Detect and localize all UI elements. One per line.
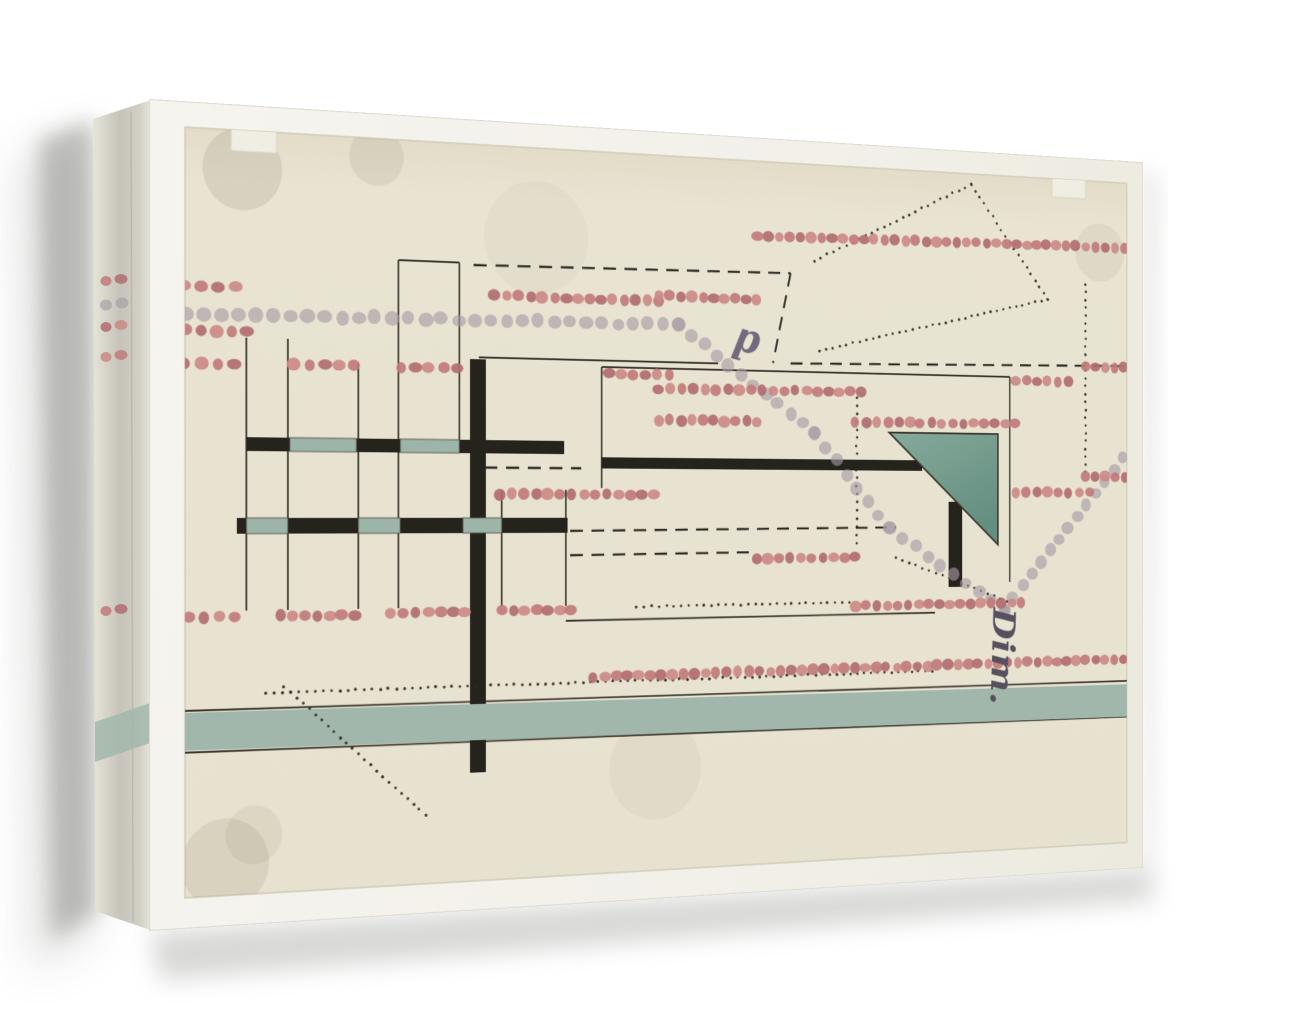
gray-dot xyxy=(1045,543,1056,556)
ink-dot xyxy=(856,500,858,503)
wrapped-red-dot xyxy=(115,350,128,360)
teal-block xyxy=(290,438,357,452)
ink-dot xyxy=(856,517,859,520)
gray-dot xyxy=(910,539,922,552)
teal-block xyxy=(400,439,459,453)
gray-dot xyxy=(841,469,853,482)
artwork-svg: Dim.d xyxy=(150,100,1142,930)
ink-dot xyxy=(855,534,857,537)
gray-dot xyxy=(948,567,960,580)
gray-dot xyxy=(934,559,946,573)
red-dot xyxy=(774,553,784,563)
gray-dot xyxy=(1072,511,1084,522)
wrapped-red-dot xyxy=(115,274,128,284)
red-dot xyxy=(1075,488,1084,498)
ink-dot xyxy=(921,567,923,570)
ink-dot xyxy=(856,542,858,545)
wrapped-red-dot xyxy=(115,604,128,614)
red-dot xyxy=(602,488,611,499)
red-dot xyxy=(518,488,529,500)
red-dot xyxy=(1081,471,1090,482)
red-dot xyxy=(1021,487,1031,498)
ink-dot xyxy=(855,468,858,471)
canvas-side-face xyxy=(93,100,153,931)
red-dot xyxy=(494,489,506,501)
red-dot xyxy=(613,490,625,500)
red-dot xyxy=(1033,487,1042,498)
ink-dot xyxy=(935,572,937,575)
red-dot xyxy=(648,489,660,499)
wrapped-red-dot xyxy=(115,320,128,330)
red-dot xyxy=(1099,470,1110,481)
ink-dot xyxy=(856,476,858,479)
wrapped-red-dot xyxy=(101,606,112,616)
red-dot xyxy=(507,487,517,499)
gray-dot xyxy=(850,481,862,495)
red-dot xyxy=(828,552,839,562)
teal-block xyxy=(358,518,400,534)
shadow-right xyxy=(1142,168,1158,880)
red-dot xyxy=(796,553,806,563)
gray-dot xyxy=(923,551,935,564)
ink-dot xyxy=(856,452,858,454)
gray-dot xyxy=(1081,498,1091,511)
red-dot xyxy=(1085,487,1094,496)
teal-block xyxy=(463,518,502,533)
ink-dot xyxy=(855,460,857,463)
wrapped-red-dot xyxy=(101,276,112,286)
red-dot xyxy=(579,489,589,500)
ink-dot xyxy=(942,574,944,576)
inscription-dim: Dim. xyxy=(983,607,1022,705)
red-dot xyxy=(567,488,576,500)
gray-dot xyxy=(872,510,884,521)
red-dot xyxy=(752,553,762,564)
red-dot xyxy=(806,553,816,563)
red-dot xyxy=(590,490,601,500)
red-dot xyxy=(1091,471,1100,482)
red-dot xyxy=(1121,472,1129,483)
wrapped-gray-dot xyxy=(116,298,129,309)
red-dot xyxy=(1064,488,1072,499)
ink-dot xyxy=(1084,463,1086,466)
red-dot xyxy=(785,552,794,564)
red-dot xyxy=(625,490,637,501)
gray-dot xyxy=(1118,451,1128,463)
red-dot xyxy=(819,552,827,563)
wrapped-gray-dot xyxy=(100,300,112,311)
gray-dot xyxy=(883,521,896,534)
canvas-print: Dim.d xyxy=(150,100,1142,930)
ink-dot xyxy=(908,561,911,564)
paper-notch xyxy=(231,119,276,153)
red-dot xyxy=(554,489,565,500)
ink-dot xyxy=(895,556,897,559)
ink-dot xyxy=(914,564,916,567)
ink-dot xyxy=(856,509,859,512)
ink-dot xyxy=(1084,455,1086,458)
teal-block xyxy=(246,518,288,534)
wrapped-red-dot xyxy=(101,352,112,362)
ink-dot xyxy=(856,525,859,528)
wrapped-red-dot xyxy=(101,322,112,332)
gray-dot xyxy=(1061,522,1073,535)
red-dot xyxy=(1042,486,1053,497)
red-dot xyxy=(849,552,860,562)
paper-notch xyxy=(1052,169,1085,198)
ink-dot xyxy=(928,569,930,572)
canvas-mockup-scene: Dim.d xyxy=(0,0,1290,1031)
ink-dot xyxy=(901,559,903,562)
red-dot xyxy=(761,553,773,565)
red-dot xyxy=(636,489,648,499)
gray-dot xyxy=(1035,555,1047,569)
gray-dot xyxy=(862,495,874,509)
red-dot xyxy=(541,488,554,500)
canvas-front-face: Dim.d xyxy=(150,100,1142,930)
red-dot xyxy=(839,552,850,563)
red-dot xyxy=(1110,472,1119,482)
red-dot xyxy=(1053,488,1062,498)
gray-dot xyxy=(896,532,908,545)
gray-dot xyxy=(831,453,843,466)
red-dot xyxy=(531,488,542,500)
gray-dot xyxy=(1053,534,1064,545)
ink-dot xyxy=(1084,448,1086,451)
red-dot xyxy=(1012,487,1020,498)
